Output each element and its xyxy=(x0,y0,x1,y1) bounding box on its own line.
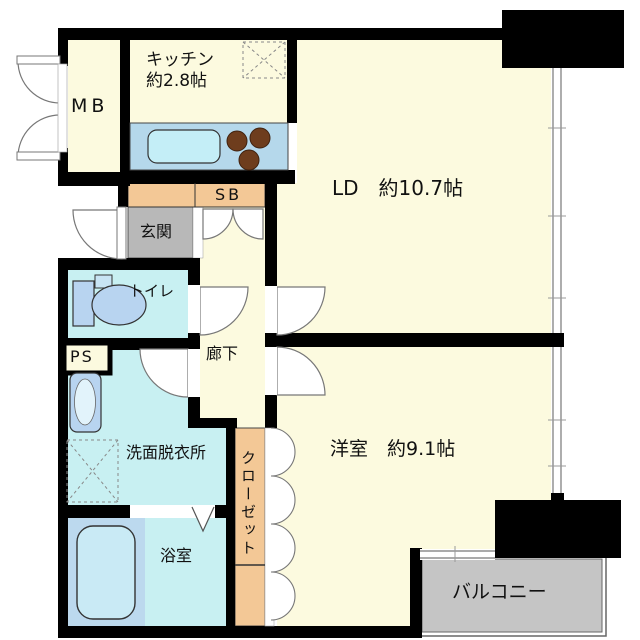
bathtub xyxy=(77,526,135,619)
room-label-closet: クローゼット xyxy=(240,450,255,626)
room-label-toilet: トイレ xyxy=(129,282,174,301)
room-label-hallway: 廊下 xyxy=(206,344,238,364)
room-label-entrance: 玄関 xyxy=(140,222,172,242)
room-label-washroom: 洗面脱衣所 xyxy=(126,443,206,463)
room-label-pipe-space: PS xyxy=(70,347,94,367)
kitchen-name: キッチン xyxy=(146,50,214,70)
kitchen-size: 約2.8帖 xyxy=(146,71,207,91)
stove-burner xyxy=(239,150,259,170)
room-washroom-2 xyxy=(188,428,226,505)
room-shoe-box xyxy=(128,183,265,207)
floor-plan: キッチン 約2.8帖 MB LD 約10.7帖 SB 玄関 トイレ PS 廊下 … xyxy=(0,0,640,640)
room-label-kitchen: キッチン 約2.8帖 xyxy=(146,50,214,93)
stove-burner xyxy=(227,131,247,151)
room-bedroom-2 xyxy=(277,550,410,626)
pillar-southeast xyxy=(495,500,621,558)
room-label-mb: MB xyxy=(71,95,108,119)
stove-burner xyxy=(250,128,270,148)
kitchen-sink xyxy=(148,130,220,163)
room-label-bathroom: 浴室 xyxy=(160,546,192,566)
pillar-northeast xyxy=(502,10,624,68)
entrance-door xyxy=(73,207,126,259)
room-label-shoe-box: SB xyxy=(215,185,242,205)
room-label-living-dining: LD 約10.7帖 xyxy=(332,176,463,201)
washbasin xyxy=(70,373,101,432)
room-label-bedroom: 洋室 約9.1帖 xyxy=(330,438,455,462)
room-label-balcony: バルコニー xyxy=(452,581,547,605)
entrance-step xyxy=(193,207,203,258)
mb-double-door xyxy=(17,56,67,160)
